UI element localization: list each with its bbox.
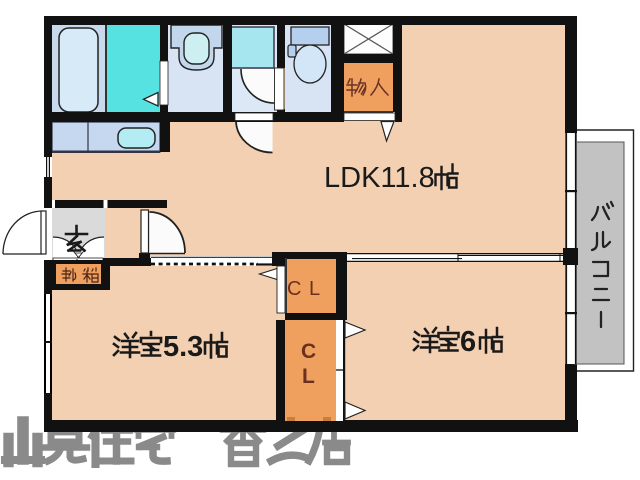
svg-text:C: C bbox=[301, 340, 316, 363]
svg-text:6: 6 bbox=[460, 326, 476, 358]
svg-text:L: L bbox=[309, 278, 320, 300]
svg-text:C: C bbox=[287, 278, 301, 300]
svg-text:L: L bbox=[302, 365, 315, 388]
svg-text:5.3: 5.3 bbox=[163, 331, 203, 363]
svg-text:LDK11.8: LDK11.8 bbox=[324, 162, 435, 194]
